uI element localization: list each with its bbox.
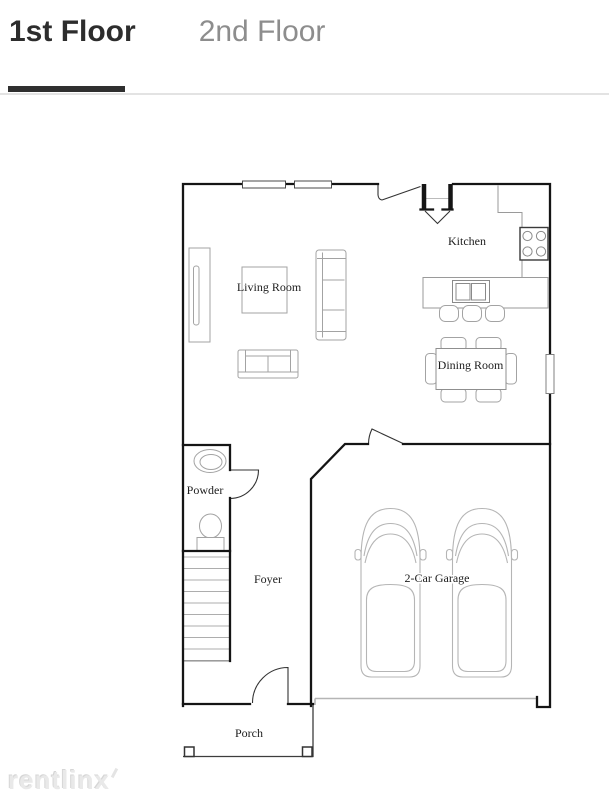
kitchen-counter: [498, 186, 522, 278]
watermark-text: rentlinx: [8, 765, 110, 795]
garage-label: 2-Car Garage: [405, 571, 470, 585]
front-door: [253, 668, 289, 704]
furniture-layer: [189, 186, 548, 678]
porch-post: [185, 747, 195, 757]
toilet: [197, 514, 224, 551]
bar-stools: [440, 306, 505, 322]
rentlinx-watermark: rentlinx: [8, 765, 116, 796]
island-sink: [453, 281, 490, 303]
porch-label: Porch: [235, 726, 263, 740]
porch-post: [303, 747, 313, 757]
foyer-label: Foyer: [254, 572, 282, 586]
powder-door: [230, 470, 259, 499]
garage-door: [315, 699, 537, 706]
car-1: [355, 509, 426, 678]
powder-label: Powder: [187, 483, 224, 497]
car-2: [447, 509, 518, 678]
door-jambs: [424, 184, 451, 210]
sofa: [316, 250, 346, 340]
loveseat: [238, 350, 298, 378]
tv-console: [189, 248, 210, 342]
window: [546, 355, 554, 394]
stairs: [184, 557, 229, 661]
powder-sink: [194, 450, 226, 473]
window: [243, 181, 286, 188]
garage-entry-door: [369, 429, 404, 444]
recess-door: [425, 211, 450, 224]
stove: [520, 228, 548, 261]
dining-room-label: Dining Room: [438, 358, 504, 372]
window: [295, 181, 332, 188]
back-door: [378, 184, 421, 200]
kitchen-label: Kitchen: [448, 234, 486, 248]
living-room-label: Living Room: [237, 280, 302, 294]
floorplan-drawing: Living Room Kitchen Dining Room Powder F…: [0, 0, 609, 800]
